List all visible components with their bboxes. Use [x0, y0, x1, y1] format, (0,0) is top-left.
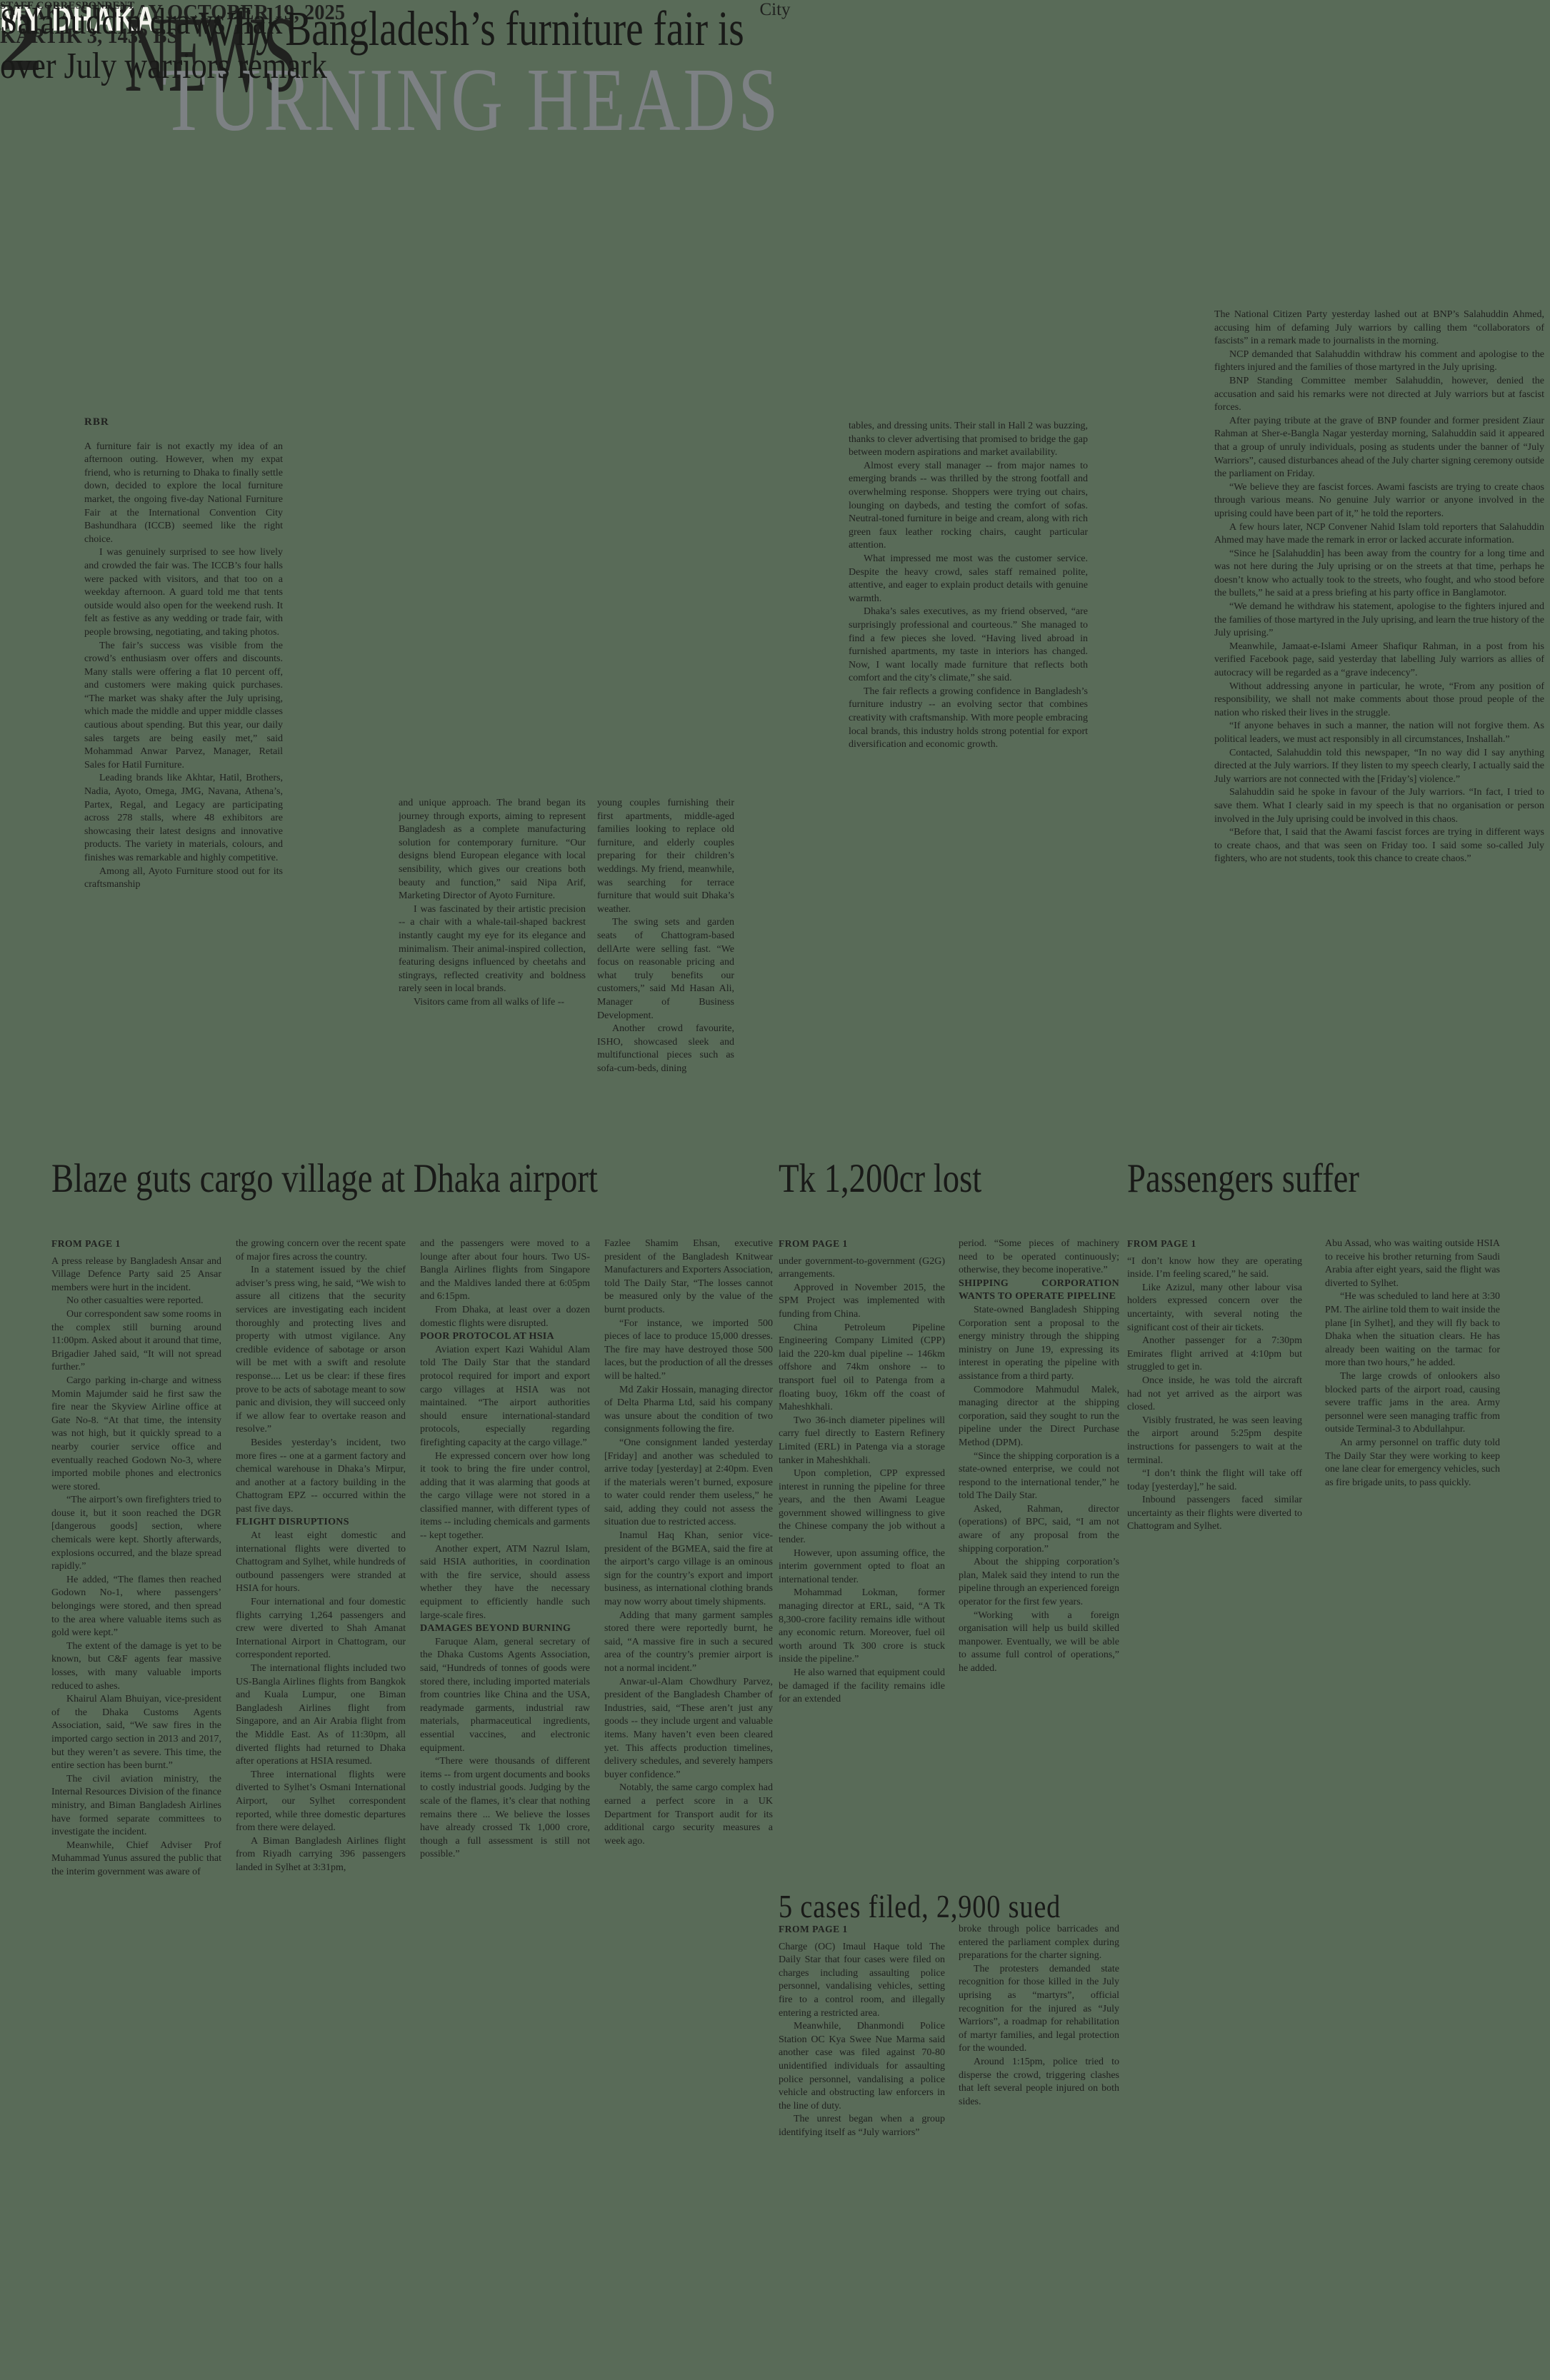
paragraph: DAMAGES BEYOND BURNING: [420, 1622, 590, 1636]
paragraph: Our correspondent saw some rooms in the …: [51, 1308, 221, 1375]
paragraph: The unrest began when a group identifyin…: [779, 2113, 945, 2139]
passengers-column-2: Abu Assad, who was waiting outside HSIA …: [1325, 1237, 1500, 1994]
paragraph: and unique approach. The brand began its…: [399, 797, 586, 903]
paragraph: Md Zakir Hossain, managing director of D…: [604, 1384, 773, 1437]
paragraph: From Dhaka, at least over a dozen domest…: [420, 1304, 590, 1330]
paragraph: “If anyone behaves in such a manner, the…: [1214, 720, 1544, 746]
paragraph: “We believe they are fascist forces. Awa…: [1214, 481, 1544, 521]
paragraph: under government-to-government (G2G) arr…: [779, 1255, 945, 1282]
paragraph: About the shipping corporation’s plan, M…: [959, 1556, 1119, 1609]
paragraph: Dhaka’s sales executives, as my friend o…: [849, 606, 1088, 686]
blaze-headline: Blaze guts cargo village at Dhaka airpor…: [51, 1158, 598, 1199]
paragraph: Besides yesterday’s incident, two more f…: [236, 1437, 406, 1517]
passengers-headline: Passengers suffer: [1127, 1158, 1359, 1199]
blaze-column-3: and the passengers were moved to a loung…: [420, 1237, 590, 2380]
blaze-column-4: Fazlee Shamim Ehsan, executive president…: [604, 1237, 773, 2380]
paragraph: “I don’t think the flight will take off …: [1127, 1467, 1302, 1494]
paragraph: “For instance, we imported 500 pieces of…: [604, 1317, 773, 1384]
paragraph: Another crowd favourite, ISHO, showcased…: [597, 1023, 734, 1075]
passengers-kicker: FROM PAGE 1: [1127, 1237, 1302, 1251]
paragraph: Another expert, ATM Nazrul Islam, said H…: [420, 1543, 590, 1623]
paragraph: Adding that many garment samples stored …: [604, 1610, 773, 1676]
paragraph: Among all, Ayoto Furniture stood out for…: [84, 865, 283, 892]
cases-column-2: broke through police barricades and ente…: [959, 1923, 1119, 2380]
paragraph: What impressed me most was the customer …: [849, 553, 1088, 606]
pipeline-headline: Tk 1,200cr lost: [779, 1158, 981, 1199]
paragraph: No other casualties were reported.: [51, 1295, 221, 1308]
paragraph: I was genuinely surprised to see how liv…: [84, 546, 283, 639]
paragraph: The international flights included two U…: [236, 1662, 406, 1769]
paragraph: Notably, the same cargo complex had earn…: [604, 1782, 773, 1848]
passengers-column-1-text: “I don’t know how they are operating ins…: [1127, 1255, 1302, 1534]
paragraph: young couples furnishing their first apa…: [597, 797, 734, 916]
pipeline-column-1-text: under government-to-government (G2G) arr…: [779, 1255, 945, 1707]
paragraph: Approved in November 2015, the SPM Proje…: [779, 1282, 945, 1322]
feature-column-2: and unique approach. The brand began its…: [399, 797, 586, 1133]
paragraph: broke through police barricades and ente…: [959, 1923, 1119, 1963]
blaze-column-1-text: A press release by Bangladesh Ansar and …: [51, 1255, 221, 1879]
paragraph: A furniture fair is not exactly my idea …: [84, 441, 283, 547]
paragraph: Almost every stall manager -- from major…: [849, 460, 1088, 553]
paragraph: Around 1:15pm, police tried to disperse …: [959, 2056, 1119, 2109]
paragraph: He expressed concern over how long it to…: [420, 1450, 590, 1543]
paragraph: Once inside, he was told the aircraft ha…: [1127, 1375, 1302, 1415]
paragraph: The extent of the damage is yet to be kn…: [51, 1640, 221, 1693]
paragraph: POOR PROTOCOL AT HSIA: [420, 1330, 590, 1344]
paragraph: Three international flights were diverte…: [236, 1769, 406, 1835]
blaze-kicker: FROM PAGE 1: [51, 1237, 221, 1251]
paragraph: Anwar-ul-Alam Chowdhury Parvez, presiden…: [604, 1676, 773, 1782]
paragraph: The fair reflects a growing confidence i…: [849, 686, 1088, 752]
feature-byline: RBR: [84, 416, 283, 429]
paragraph: Abu Assad, who was waiting outside HSIA …: [1325, 1237, 1500, 1290]
paragraph: A Biman Bangladesh Airlines flight from …: [236, 1835, 406, 1875]
paragraph: I was fascinated by their artistic preci…: [399, 903, 586, 996]
pipeline-kicker: FROM PAGE 1: [779, 1237, 945, 1251]
paragraph: Asked, Rahman, director (operations) of …: [959, 1503, 1119, 1556]
paragraph: Mohammad Lokman, former managing directo…: [779, 1587, 945, 1667]
paragraph: Cargo parking in-charge and witness Momi…: [51, 1375, 221, 1494]
paragraph: “One consignment landed yesterday [Frida…: [604, 1437, 773, 1530]
paragraph: Meanwhile, Chief Adviser Prof Muhammad Y…: [51, 1839, 221, 1879]
paragraph: Upon completion, CPP expressed interest …: [779, 1467, 945, 1547]
feature-column-4: tables, and dressing units. Their stall …: [849, 420, 1088, 1130]
paragraph: Khairul Alam Bhuiyan, vice-president of …: [51, 1693, 221, 1773]
paragraph: “We demand he withdraw his statement, ap…: [1214, 601, 1544, 641]
paragraph: “Working with a foreign organisation wil…: [959, 1610, 1119, 1676]
paragraph: FLIGHT DISRUPTIONS: [236, 1516, 406, 1530]
paragraph: Another passenger for a 7:30pm Emirates …: [1127, 1335, 1302, 1375]
feature-column-3: young couples furnishing their first apa…: [597, 797, 734, 1133]
passengers-column-1: FROM PAGE 1 “I don’t know how they are o…: [1127, 1237, 1302, 1994]
paragraph: “There were thousands of different items…: [420, 1755, 590, 1862]
paragraph: Without addressing anyone in particular,…: [1214, 681, 1544, 720]
paragraph: The swing sets and garden seats of Chatt…: [597, 916, 734, 1023]
paragraph: An army personnel on traffic duty told T…: [1325, 1437, 1500, 1490]
paragraph: “Before that, I said that the Awami fasc…: [1214, 826, 1544, 866]
paragraph: SHIPPING CORPORATION WANTS TO OPERATE PI…: [959, 1277, 1119, 1304]
paragraph: After paying tribute at the grave of BNP…: [1214, 415, 1544, 481]
paragraph: However, upon assuming office, the inter…: [779, 1547, 945, 1587]
paragraph: Visibly frustrated, he was seen leaving …: [1127, 1415, 1302, 1467]
paragraph: BNP Standing Committee member Salahuddin…: [1214, 375, 1544, 415]
feature-column-1: RBR A furniture fair is not exactly my i…: [84, 416, 283, 1119]
paragraph: The National Citizen Party yesterday las…: [1214, 308, 1544, 348]
paragraph: Fazlee Shamim Ehsan, executive president…: [604, 1237, 773, 1317]
paragraph: Inamul Haq Khan, senior vice-president o…: [604, 1530, 773, 1610]
feature-photo-area: [300, 450, 836, 785]
cases-column-1-text: Charge (OC) Imaul Haque told The Daily S…: [779, 1941, 945, 2140]
salahuddin-headline: Salahuddin draws flak over July warriors…: [0, 0, 337, 89]
paragraph: A press release by Bangladesh Ansar and …: [51, 1255, 221, 1295]
paragraph: “Since he [Salahuddin] has been away fro…: [1214, 548, 1544, 601]
paragraph: “I don’t know how they are operating ins…: [1127, 1255, 1302, 1282]
paragraph: Commodore Mahmudul Malek, managing direc…: [959, 1384, 1119, 1450]
newspaper-page: City 2 DHAKA SUNDAY OCTOBER 19, 2025 KAR…: [0, 0, 1550, 2380]
paragraph: Charge (OC) Imaul Haque told The Daily S…: [779, 1941, 945, 2021]
paragraph: The large crowds of onlookers also block…: [1325, 1370, 1500, 1437]
cases-column-1: FROM PAGE 1 Charge (OC) Imaul Haque told…: [779, 1923, 945, 2380]
cases-headline: 5 cases filed, 2,900 sued: [779, 1891, 1061, 1923]
paragraph: In a statement issued by the chief advis…: [236, 1264, 406, 1437]
paragraph: and the passengers were moved to a loung…: [420, 1237, 590, 1304]
cases-kicker: FROM PAGE 1: [779, 1923, 945, 1937]
paragraph: The fair’s success was visible from the …: [84, 640, 283, 773]
paragraph: Aviation expert Kazi Wahidul Alam told T…: [420, 1344, 590, 1450]
paragraph: tables, and dressing units. Their stall …: [849, 420, 1088, 460]
paragraph: the growing concern over the recent spat…: [236, 1237, 406, 1264]
paragraph: Inbound passengers faced similar uncerta…: [1127, 1494, 1302, 1534]
paragraph: Two 36-inch diameter pipelines will carr…: [779, 1415, 945, 1467]
paragraph: Four international and four domestic fli…: [236, 1596, 406, 1662]
blaze-column-1: FROM PAGE 1 A press release by Banglades…: [51, 1237, 221, 2380]
paragraph: Salahuddin said he spoke in favour of th…: [1214, 786, 1544, 826]
paragraph: The protesters demanded state recognitio…: [959, 1963, 1119, 2056]
paragraph: Meanwhile, Dhanmondi Police Station OC K…: [779, 2020, 945, 2113]
paragraph: “He was scheduled to land here at 3:30 P…: [1325, 1290, 1500, 1370]
paragraph: China Petroleum Pipeline Engineering Com…: [779, 1322, 945, 1415]
paragraph: Faruque Alam, general secretary of the D…: [420, 1636, 590, 1755]
paragraph: NCP demanded that Salahuddin withdraw hi…: [1214, 348, 1544, 375]
paragraph: Visitors came from all walks of life --: [399, 996, 586, 1010]
feature-column-1-text: A furniture fair is not exactly my idea …: [84, 441, 283, 892]
paragraph: Like Azizul, many other labour visa hold…: [1127, 1282, 1302, 1335]
paragraph: “Since the shipping corporation is a sta…: [959, 1450, 1119, 1503]
paragraph: The civil aviation ministry, the Interna…: [51, 1773, 221, 1839]
paragraph: He also warned that equipment could be d…: [779, 1667, 945, 1707]
salahuddin-byline: STAFF CORRESPONDENT: [0, 0, 135, 12]
paragraph: Leading brands like Akhtar, Hatil, Broth…: [84, 772, 283, 865]
blaze-column-2: the growing concern over the recent spat…: [236, 1237, 406, 2380]
paragraph: “The airport’s own firefighters tried to…: [51, 1494, 221, 1574]
paragraph: period. “Some pieces of machinery need t…: [959, 1237, 1119, 1277]
paragraph: At least eight domestic and internationa…: [236, 1530, 406, 1596]
paragraph: A few hours later, NCP Convener Nahid Is…: [1214, 521, 1544, 548]
paragraph: Contacted, Salahuddin told this newspape…: [1214, 747, 1544, 787]
paragraph: State-owned Bangladesh Shipping Corporat…: [959, 1304, 1119, 1384]
paragraph: He added, “The flames then reached Godow…: [51, 1574, 221, 1640]
salahuddin-body: The National Citizen Party yesterday las…: [1214, 308, 1544, 1148]
paragraph: Meanwhile, Jamaat-e-Islami Ameer Shafiqu…: [1214, 641, 1544, 681]
